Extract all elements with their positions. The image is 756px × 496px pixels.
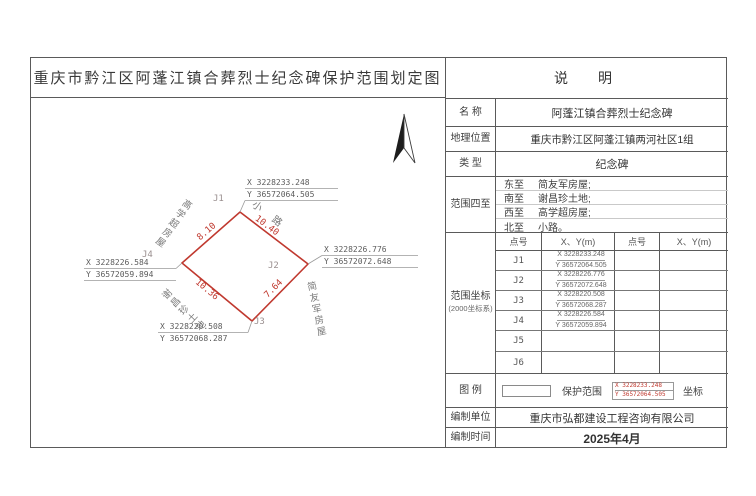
coords-j3-id: J3: [496, 291, 541, 310]
coords-row-j6-point2: [614, 352, 659, 373]
coords-table: 点号 X、Y(m) 点号 X、Y(m) J1 X 3228233.248 Y 3…: [496, 233, 728, 373]
legend-range-swatch: [502, 385, 551, 397]
coords-row-j5-xy2: [659, 331, 728, 351]
leader-j2: [308, 256, 322, 265]
north-arrow-outline: [404, 114, 415, 163]
coords-j3-x: X 3228220.508: [557, 290, 605, 301]
legend-range-text: 保护范围: [562, 383, 602, 398]
callout-j3-y: Y 36572068.287: [160, 333, 227, 345]
coords-row-j6-xy2: [659, 352, 728, 373]
coords-row-j1: J1 X 3228233.248 Y 36572064.505: [496, 251, 728, 271]
row-date: 编制时间 2025年4月: [446, 427, 728, 448]
protection-boundary: [182, 212, 308, 321]
legend-content: 保护范围 X 3228233.248 Y 36572064.505 坐标: [496, 374, 728, 407]
coords-j1-x: X 3228233.248: [557, 250, 605, 261]
vertex-label-j2: J2: [268, 261, 279, 271]
row-coordinates: 范围坐标 (2000坐标系) 点号 X、Y(m) 点号 X、Y(m) J1 X …: [446, 232, 728, 373]
row-producer: 编制单位 重庆市弘都建设工程咨询有限公司: [446, 407, 728, 427]
coords-label: 范围坐标 (2000坐标系): [446, 233, 496, 373]
coords-j2-xy: X 3228226.776 Y 36572072.648: [541, 271, 614, 290]
row-name: 名 称 阿蓬江镇合葬烈士纪念碑: [446, 98, 728, 126]
coords-j4-xy: X 3228226.584 Y 36572059.894: [541, 311, 614, 330]
coords-header-xy2: X、Y(m): [659, 233, 728, 250]
drawing-sheet: 重庆市黔江区阿蓬江镇合葬烈士纪念碑保护范围划定图 J1 J2 J3 J4 X 3…: [0, 0, 756, 496]
callout-j2: X 3228226.776 Y 36572072.648: [324, 244, 391, 268]
coords-j1-id: J1: [496, 251, 541, 270]
producer-value: 重庆市弘都建设工程咨询有限公司: [496, 408, 728, 427]
explanation-panel: 说 明 名 称 阿蓬江镇合葬烈士纪念碑 地理位置 重庆市黔江区阿蓬江镇两河社区1…: [445, 57, 727, 448]
leader-j3: [248, 321, 252, 333]
vertex-label-j1: J1: [213, 194, 224, 204]
boundary-dir-south: 南至: [504, 190, 538, 205]
coords-row-j3: J3 X 3228220.508 Y 36572068.287: [496, 291, 728, 311]
coords-j1-xy: X 3228233.248 Y 36572064.505: [541, 251, 614, 270]
coords-j4-y: Y 36572059.894: [555, 321, 606, 331]
boundary-value-west: 高学超房屋;: [538, 204, 591, 219]
legend-label: 图 例: [446, 374, 496, 407]
boundary-dir-east: 东至: [504, 176, 538, 191]
name-label: 名 称: [446, 99, 496, 126]
location-value: 重庆市黔江区阿蓬江镇两河社区1组: [496, 127, 728, 151]
coords-row-j6-xy: [541, 352, 614, 373]
coords-row-j1-xy2: [659, 251, 728, 270]
coords-row-j5: J5: [496, 331, 728, 352]
date-value: 2025年4月: [496, 428, 728, 448]
callout-j1-x: X 3228233.248: [247, 177, 314, 189]
coords-j4-id: J4: [496, 311, 541, 330]
legend-coord-swatch: X 3228233.248 Y 36572064.505: [612, 382, 674, 400]
date-label: 编制时间: [446, 428, 496, 448]
coords-row-j2: J2 X 3228226.776 Y 36572072.648: [496, 271, 728, 291]
boundary-rows: 东至 简友军房屋; 南至 谢昌珍土地; 西至 高学超房屋; 北至 小路。: [496, 177, 728, 232]
coords-j4-x: X 3228226.584: [557, 310, 605, 321]
panel-header-row: 说 明: [446, 57, 728, 98]
coords-row-j2-xy2: [659, 271, 728, 290]
type-value: 纪念碑: [496, 152, 728, 176]
callout-j2-x: X 3228226.776: [324, 244, 391, 256]
legend-sample-x: X 3228233.248: [615, 382, 673, 391]
boundary-value-east: 简友军房屋;: [538, 176, 591, 191]
coords-label-line2: (2000坐标系): [448, 303, 492, 315]
callout-j4-x: X 3228226.584: [86, 257, 153, 269]
coords-row-j4: J4 X 3228226.584 Y 36572059.894: [496, 311, 728, 331]
coords-header-point: 点号: [496, 233, 541, 250]
row-location: 地理位置 重庆市黔江区阿蓬江镇两河社区1组: [446, 126, 728, 151]
coords-j5-id: J5: [496, 331, 541, 351]
callout-j4: X 3228226.584 Y 36572059.894: [86, 257, 153, 281]
row-legend: 图 例 保护范围 X 3228233.248 Y 36572064.505 坐标: [446, 373, 728, 407]
leader-j1: [240, 201, 245, 213]
name-value: 阿蓬江镇合葬烈士纪念碑: [496, 99, 728, 126]
coords-table-header: 点号 X、Y(m) 点号 X、Y(m): [496, 233, 728, 251]
boundary-row-north: 北至 小路。: [496, 219, 728, 233]
boundary-row-south: 南至 谢昌珍土地;: [496, 191, 728, 205]
coords-j2-id: J2: [496, 271, 541, 290]
type-label: 类 型: [446, 152, 496, 176]
leader-j4: [176, 263, 182, 269]
coords-j3-xy: X 3228220.508 Y 36572068.287: [541, 291, 614, 310]
coords-row-j5-xy: [541, 331, 614, 351]
coords-row-j5-point2: [614, 331, 659, 351]
row-type: 类 型 纪念碑: [446, 151, 728, 176]
callout-j2-y: Y 36572072.648: [324, 256, 391, 268]
coords-row-j3-xy2: [659, 291, 728, 310]
boundary-row-east: 东至 简友军房屋;: [496, 177, 728, 191]
coords-row-j4-point2: [614, 311, 659, 330]
coords-row-j3-point2: [614, 291, 659, 310]
coords-label-line1: 范围坐标: [451, 291, 491, 303]
coords-row-j6: J6: [496, 352, 728, 373]
legend-sample-y: Y 36572064.505: [615, 391, 673, 399]
coords-j2-x: X 3228226.776: [557, 270, 605, 281]
panel-header: 说 明: [554, 68, 620, 88]
location-label: 地理位置: [446, 127, 496, 151]
north-arrow-icon: [393, 114, 404, 163]
coords-row-j4-xy2: [659, 311, 728, 330]
boundary-value-south: 谢昌珍土地;: [538, 190, 591, 205]
coords-header-xy: X、Y(m): [541, 233, 614, 250]
callout-j4-y: Y 36572059.894: [86, 269, 153, 281]
boundary-dir-west: 西至: [504, 204, 538, 219]
coords-row-j2-point2: [614, 271, 659, 290]
row-boundary: 范围四至 东至 简友军房屋; 南至 谢昌珍土地; 西至 高学超房屋; 北至 小路…: [446, 176, 728, 232]
coords-row-j1-point2: [614, 251, 659, 270]
producer-label: 编制单位: [446, 408, 496, 427]
boundary-label: 范围四至: [446, 177, 496, 232]
coords-j6-id: J6: [496, 352, 541, 373]
coords-header-point2: 点号: [614, 233, 659, 250]
vertex-label-j3: J3: [254, 317, 265, 327]
legend-coord-text: 坐标: [683, 383, 703, 398]
boundary-row-west: 西至 高学超房屋;: [496, 205, 728, 219]
